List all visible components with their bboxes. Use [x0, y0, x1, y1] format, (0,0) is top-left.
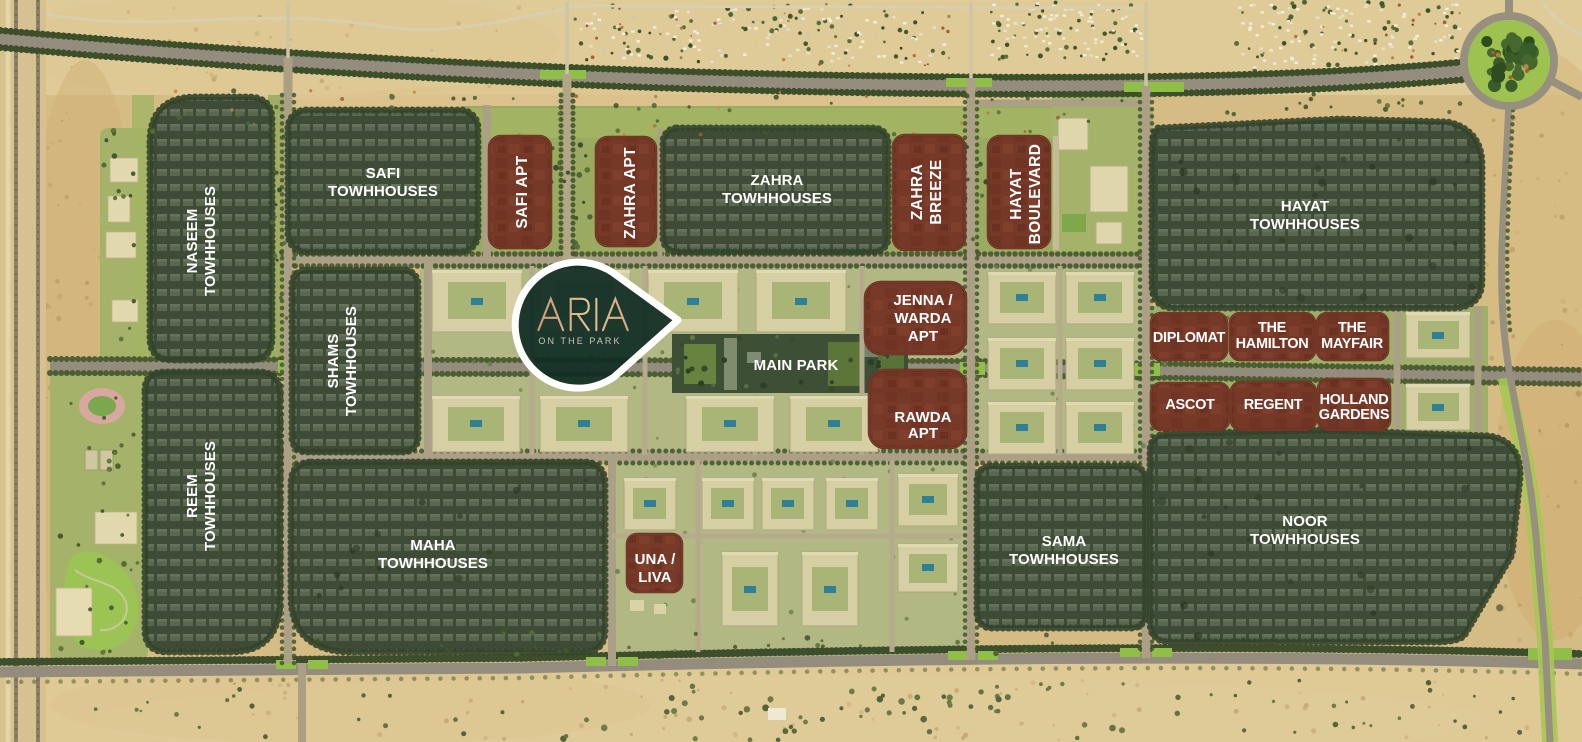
svg-text:ZAHRA: ZAHRA	[751, 172, 804, 189]
svg-text:MAHA: MAHA	[410, 537, 455, 554]
svg-text:TOWHHOUSES: TOWHHOUSES	[1250, 216, 1360, 233]
svg-text:THE: THE	[1258, 320, 1287, 336]
svg-text:TOWHHOUSES: TOWHHOUSES	[1250, 531, 1360, 548]
svg-text:TOWHHOUSES: TOWHHOUSES	[328, 183, 438, 200]
svg-text:DIPLOMAT: DIPLOMAT	[1153, 330, 1226, 346]
svg-text:TOWHHOUSES: TOWHHOUSES	[722, 190, 832, 207]
svg-text:BOULEVARD: BOULEVARD	[1027, 144, 1044, 245]
svg-text:TOWHHOUSES: TOWHHOUSES	[202, 186, 219, 296]
svg-text:TOWHHOUSES: TOWHHOUSES	[378, 555, 488, 572]
svg-text:NASEEM: NASEEM	[184, 209, 201, 274]
svg-text:SAFI APT: SAFI APT	[514, 155, 531, 228]
svg-text:REEM: REEM	[184, 474, 201, 518]
svg-text:APT: APT	[908, 425, 938, 442]
svg-text:GARDENS: GARDENS	[1319, 407, 1390, 423]
svg-text:ON THE PARK: ON THE PARK	[538, 336, 621, 346]
svg-text:MAYFAIR: MAYFAIR	[1321, 336, 1384, 352]
svg-text:TOWHHOUSES: TOWHHOUSES	[202, 441, 219, 551]
svg-text:THE: THE	[1338, 320, 1367, 336]
svg-text:TOWHHOUSES: TOWHHOUSES	[343, 306, 360, 416]
svg-text:SAMA: SAMA	[1042, 533, 1087, 550]
svg-text:LIVA: LIVA	[638, 569, 672, 586]
svg-text:TOWHHOUSES: TOWHHOUSES	[1009, 551, 1119, 568]
svg-text:SHAMS: SHAMS	[325, 334, 342, 389]
svg-text:WARDA: WARDA	[894, 310, 951, 327]
svg-text:HAYAT: HAYAT	[1008, 168, 1025, 220]
svg-text:NOOR: NOOR	[1282, 513, 1327, 530]
svg-text:ASCOT: ASCOT	[1165, 397, 1215, 413]
svg-text:ZAHRA: ZAHRA	[909, 164, 926, 220]
svg-text:HAYAT: HAYAT	[1281, 198, 1329, 215]
svg-text:JENNA /: JENNA /	[893, 292, 953, 309]
svg-text:REGENT: REGENT	[1244, 397, 1303, 413]
svg-text:APT: APT	[908, 328, 938, 345]
svg-text:MAIN PARK: MAIN PARK	[754, 357, 839, 374]
svg-text:HOLLAND: HOLLAND	[1320, 392, 1389, 408]
svg-text:HAMILTON: HAMILTON	[1236, 336, 1309, 352]
svg-text:RAWDA: RAWDA	[894, 409, 951, 426]
svg-text:BREEZE: BREEZE	[928, 159, 945, 224]
svg-text:ZAHRA APT: ZAHRA APT	[622, 147, 639, 239]
svg-text:UNA /: UNA /	[635, 551, 677, 568]
svg-text:SAFI: SAFI	[366, 165, 401, 182]
